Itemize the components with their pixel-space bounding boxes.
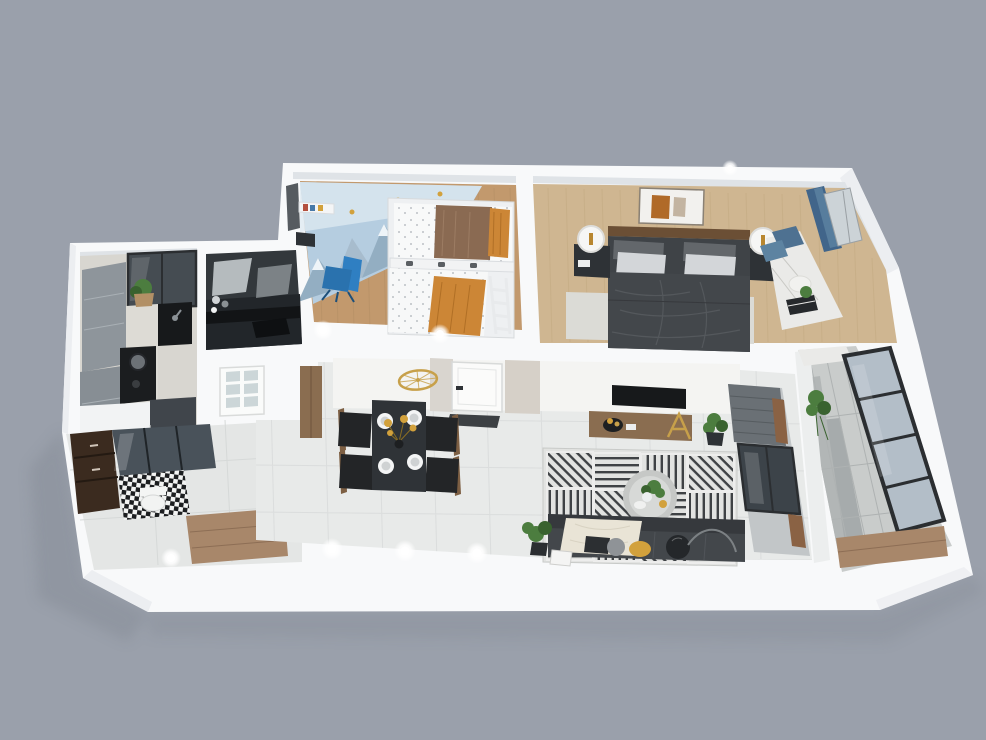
sofa [548,514,745,562]
wall-art [639,188,704,225]
kitchen-sink [158,302,192,346]
downlight [466,542,488,564]
shelf-toys [303,204,323,211]
wall-panel-greige [505,360,540,414]
kids-dark-shelf [296,232,315,247]
upper-cabinets [82,262,126,372]
downlight [394,540,416,562]
plant-basket [134,293,154,307]
desk-reflection-1 [212,258,252,296]
top-bunk-orange-blanket [488,208,510,258]
kitchen-door [220,366,264,416]
living-window [738,444,800,514]
shower-enclosure [112,424,216,476]
room-master-bedroom [533,184,897,352]
downlight [161,548,181,568]
bath-vanity [70,430,120,514]
pillow-yellow [629,541,651,557]
room-kitchen [80,251,197,448]
vanity-handle-2 [92,469,100,470]
door-handle [456,386,463,390]
pillow-dark [584,536,610,554]
double-bed [608,226,750,352]
floor-lamp-head [666,535,690,559]
great-room [220,358,812,566]
desk-reflection-2 [256,264,292,298]
leaning-frame [550,550,572,566]
apartment-floorplan-3d-render [0,0,986,740]
cooktop [120,346,156,404]
entry-door [452,362,502,412]
decor-tray [603,418,623,432]
hall-cabinet [300,366,322,438]
apartment-render-stage [0,0,986,740]
dark-counter-end [150,397,196,430]
coffee-table [623,470,677,524]
toilet [140,486,166,511]
plant-pot [530,542,548,556]
wall-tv [612,385,686,409]
vase [642,492,652,502]
pillow-round-gray [607,538,625,556]
plant-pot [706,432,724,446]
downlight [313,320,333,340]
downlight [430,324,450,344]
downlight [321,538,343,560]
console-books [626,424,636,430]
book [578,260,590,267]
tv-console [589,411,692,441]
kids-window-strip [286,183,300,231]
bunk-bed [388,198,514,338]
vanity-handle [90,445,98,446]
mug [659,500,667,508]
study-nook [206,250,302,350]
seat-plant [800,286,812,298]
dining-table [372,400,426,492]
table-lamp-left [578,226,604,252]
room-kids-bedroom [286,181,522,338]
dish [634,501,646,509]
downlight [722,160,738,176]
vase [395,440,404,449]
